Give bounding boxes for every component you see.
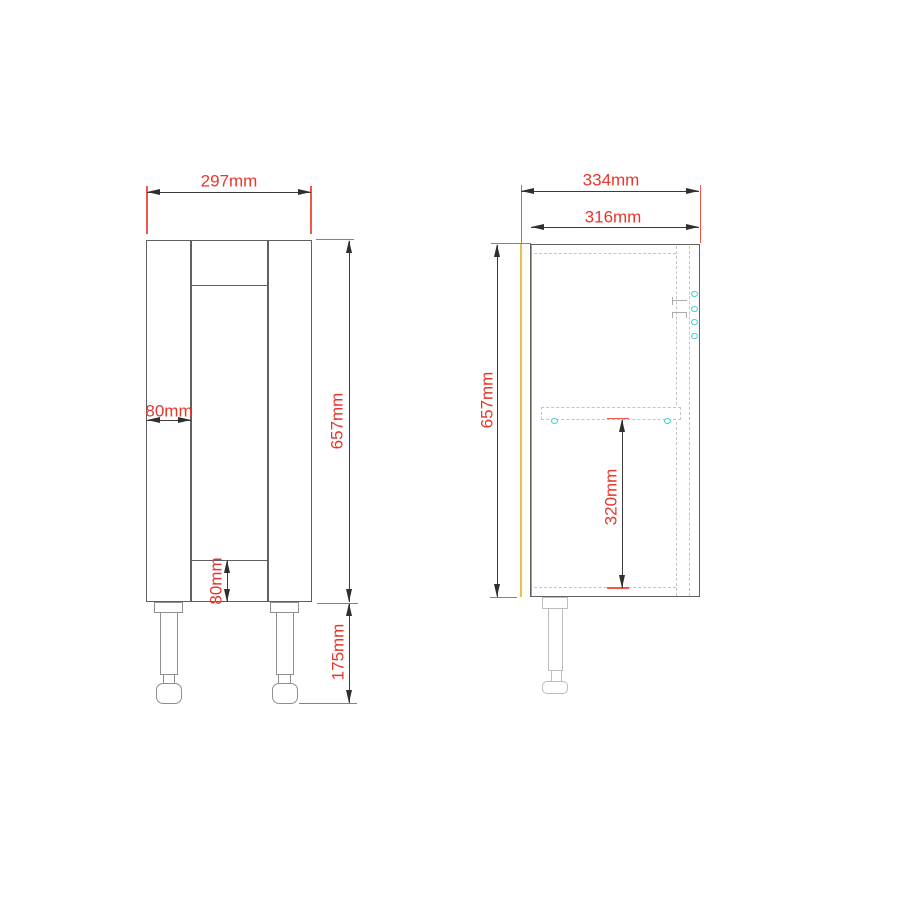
shelf-pin-marker	[551, 418, 558, 424]
dim-label-bottom-rail: 80mm	[208, 557, 225, 604]
hidden-top-panel-line	[534, 253, 676, 254]
door-top-rail-line	[190, 285, 268, 287]
dim-label-leg-height: 175mm	[330, 624, 347, 681]
right-leg-shaft	[276, 612, 294, 675]
dim-label-side-height: 657mm	[479, 372, 496, 429]
dimension-line	[531, 227, 699, 228]
drawing-canvas: 297mm 80mm 657mm 80mm	[0, 0, 900, 900]
right-leg-foot	[272, 683, 298, 704]
arrowhead-down	[346, 589, 352, 602]
dim-label-overall-width: 297mm	[201, 173, 258, 190]
cam-fitting-marker	[691, 333, 698, 339]
arrowhead-down	[346, 690, 352, 703]
dim-label-front-height: 657mm	[329, 393, 346, 450]
arrowhead-left	[147, 189, 160, 195]
cabinet-front-outline	[146, 240, 312, 602]
arrowhead-up	[619, 419, 625, 432]
door-stile-right-line	[267, 240, 269, 602]
hinge-mark	[672, 312, 673, 318]
arrowhead-left	[521, 188, 534, 194]
hidden-bottom-panel-line	[534, 587, 676, 588]
dimension-line	[622, 420, 623, 588]
hinge-mark	[686, 312, 687, 318]
hinge-mark	[672, 312, 687, 313]
cam-fitting-marker	[691, 319, 698, 325]
arrowhead-left	[531, 224, 544, 230]
dimension-line	[521, 191, 699, 192]
arrowhead-up	[494, 244, 500, 257]
extension-tick	[607, 418, 629, 420]
shelf-pin-marker	[664, 418, 671, 424]
arrowhead-up	[346, 603, 352, 616]
cam-fitting-marker	[691, 306, 698, 312]
arrowhead-down	[494, 584, 500, 597]
extension-line	[700, 185, 702, 243]
hinge-mark	[672, 300, 687, 301]
arrowhead-right	[686, 224, 699, 230]
arrowhead-up	[346, 240, 352, 253]
dimension-line	[349, 241, 350, 602]
side-leg-shaft	[548, 608, 563, 671]
dim-label-stile-width: 80mm	[145, 403, 192, 420]
hidden-back-panel-line	[676, 246, 677, 596]
extension-tick	[607, 587, 629, 589]
side-leg-foot	[542, 681, 568, 694]
left-leg-foot	[156, 683, 182, 704]
cam-fitting-marker	[691, 291, 698, 297]
dim-label-internal-depth: 316mm	[585, 208, 642, 225]
arrowhead-right	[686, 188, 699, 194]
arrowhead-down	[619, 575, 625, 588]
hidden-back-panel-line	[689, 246, 690, 596]
dimension-line	[349, 604, 350, 703]
left-leg-shaft	[160, 612, 179, 675]
dimension-line	[147, 192, 311, 193]
dimension-line	[497, 245, 498, 597]
arrowhead-right	[298, 189, 311, 195]
dim-label-shelf-to-base: 320mm	[603, 469, 620, 526]
dim-label-overall-depth: 334mm	[583, 172, 640, 189]
